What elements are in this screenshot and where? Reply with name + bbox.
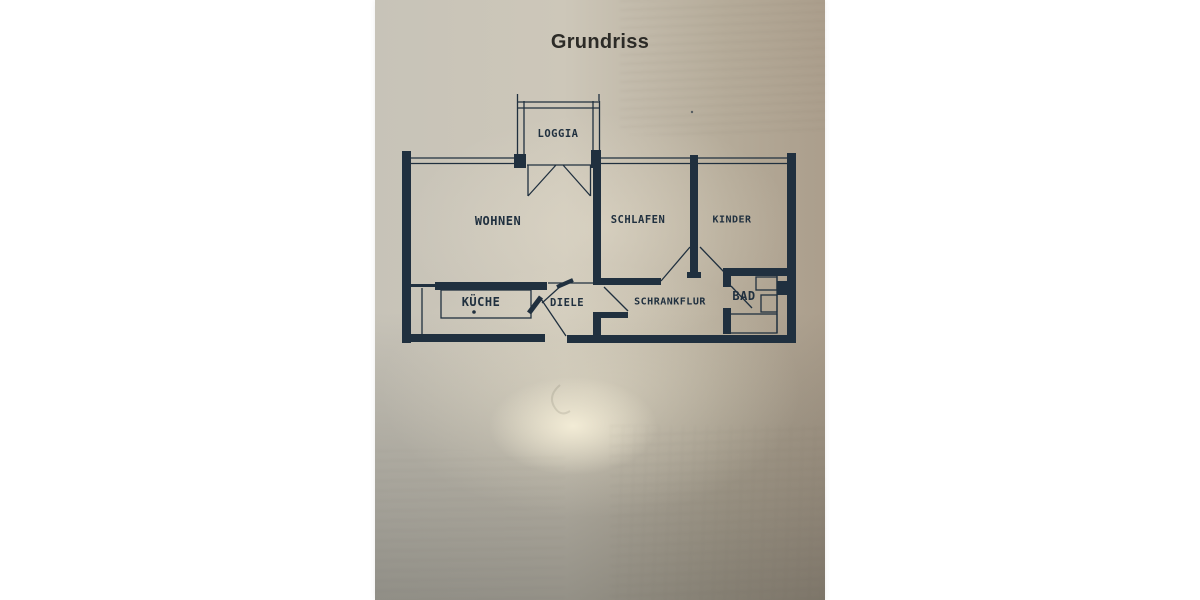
- room-label-schlafen: SCHLAFEN: [611, 214, 666, 226]
- wall-wohnen-kueche: [435, 282, 547, 290]
- room-label-bad: BAD: [732, 289, 755, 303]
- kueche-sink-dot: [472, 310, 476, 314]
- loggia-walls: [517, 94, 600, 157]
- floor-plan: LOGGIA WOHNEN SCHLAFEN KINDER KÜCHE DIEL…: [375, 0, 825, 600]
- wall-schlafen-flur: [598, 278, 661, 285]
- wall-cap-schlafen-kinder: [687, 272, 701, 278]
- faint-squiggle: [552, 385, 570, 413]
- wall-bottom-left: [402, 334, 545, 342]
- room-label-loggia: LOGGIA: [538, 128, 579, 140]
- room-label-kinder: KINDER: [712, 215, 751, 226]
- room-label-wohnen: WOHNEN: [475, 214, 521, 228]
- wall-schlafen-kinder: [690, 155, 698, 272]
- schlafen-door-swing: [661, 247, 690, 281]
- floor-plan-drawing: [375, 0, 825, 600]
- kinder-door-swing: [700, 247, 724, 272]
- bad-bathtub: [729, 314, 777, 333]
- bad-washbasin: [756, 277, 777, 290]
- wall-wohnen-kueche-thin: [411, 284, 437, 287]
- bad-wc: [761, 295, 777, 312]
- duct-shaft: [777, 281, 787, 295]
- wall-bad-top: [723, 268, 787, 276]
- paper-speck: [691, 111, 693, 113]
- wall-stub-schrankflur: [593, 312, 628, 318]
- wall-wohnen-schlafen: [593, 155, 601, 285]
- wall-bad-left-upper: [723, 268, 731, 287]
- room-label-schrankflur: SCHRANKFLUR: [634, 297, 706, 308]
- balcony-door: [527, 165, 591, 196]
- diele-schrankflur-door-swing: [604, 287, 628, 311]
- wall-left-outer: [402, 151, 411, 343]
- room-label-diele: DIELE: [550, 297, 584, 309]
- wall-right-outer: [787, 153, 796, 343]
- room-label-kueche: KÜCHE: [462, 295, 501, 309]
- document-paper: Grundriss: [375, 0, 825, 600]
- photo-background: Grundriss: [0, 0, 1200, 600]
- wall-bottom-right: [567, 335, 796, 343]
- window-band-left: [411, 158, 517, 164]
- wall-bad-left-lower: [723, 308, 731, 334]
